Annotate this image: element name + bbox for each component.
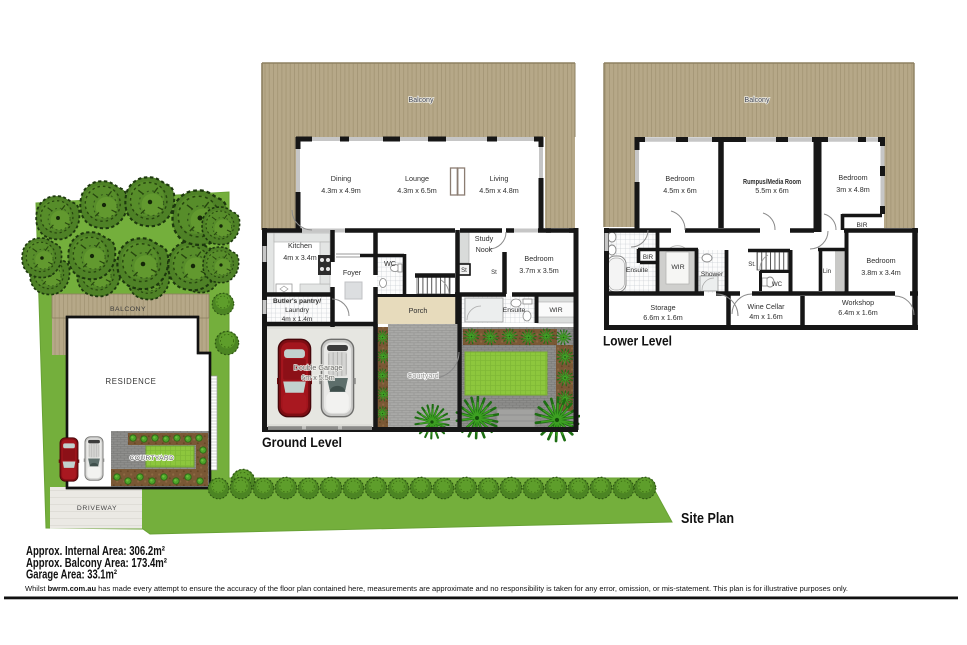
svg-text:Ensuite: Ensuite bbox=[626, 267, 648, 274]
svg-text:Bedroom: Bedroom bbox=[665, 174, 694, 183]
svg-text:Shower: Shower bbox=[701, 271, 724, 278]
svg-text:Lin: Lin bbox=[823, 268, 832, 275]
svg-text:Workshop: Workshop bbox=[842, 298, 874, 307]
svg-text:Butler's pantry/: Butler's pantry/ bbox=[273, 298, 321, 305]
svg-text:Lounge: Lounge bbox=[405, 174, 429, 183]
svg-text:DRIVEWAY: DRIVEWAY bbox=[77, 505, 117, 512]
svg-text:5.5m x 6m: 5.5m x 6m bbox=[755, 186, 789, 195]
svg-text:3m x 4.8m: 3m x 4.8m bbox=[836, 185, 870, 194]
svg-text:Living: Living bbox=[490, 174, 509, 183]
svg-text:6.4m x 1.6m: 6.4m x 1.6m bbox=[838, 308, 878, 317]
svg-text:Wine Cellar: Wine Cellar bbox=[747, 302, 785, 311]
svg-text:Double Garage: Double Garage bbox=[294, 363, 343, 372]
svg-text:3.8m x 3.4m: 3.8m x 3.4m bbox=[861, 268, 901, 277]
svg-text:Rumpus/Media Room: Rumpus/Media Room bbox=[743, 177, 801, 186]
svg-text:4.3m x 6.5m: 4.3m x 6.5m bbox=[397, 186, 437, 195]
svg-text:WIR: WIR bbox=[671, 264, 684, 271]
svg-text:Garage Area: 33.1m²: Garage Area: 33.1m² bbox=[26, 568, 117, 582]
svg-text:4.5m x 4.8m: 4.5m x 4.8m bbox=[479, 186, 519, 195]
svg-text:4.3m x 4.9m: 4.3m x 4.9m bbox=[321, 186, 361, 195]
svg-text:Ensuite: Ensuite bbox=[503, 307, 526, 314]
svg-text:BIR: BIR bbox=[857, 222, 868, 229]
svg-text:Foyer: Foyer bbox=[343, 268, 362, 277]
svg-text:Bedroom: Bedroom bbox=[838, 173, 867, 182]
svg-text:Kitchen: Kitchen bbox=[288, 241, 312, 250]
svg-text:Balcony: Balcony bbox=[745, 97, 770, 104]
svg-text:Whilst bwrm.com.au has made ev: Whilst bwrm.com.au has made every attemp… bbox=[25, 584, 848, 593]
svg-text:Porch: Porch bbox=[409, 306, 428, 315]
svg-text:Dining: Dining bbox=[331, 174, 351, 183]
svg-text:St.: St. bbox=[748, 261, 756, 268]
svg-text:Nook: Nook bbox=[476, 245, 493, 254]
svg-text:BIR: BIR bbox=[643, 254, 654, 261]
svg-text:St: St bbox=[491, 270, 497, 276]
svg-text:WIR: WIR bbox=[549, 307, 562, 314]
svg-text:COURTYARD: COURTYARD bbox=[130, 455, 174, 462]
svg-text:6m x 5.5m: 6m x 5.5m bbox=[301, 373, 335, 382]
svg-text:Courtyard: Courtyard bbox=[407, 371, 439, 380]
svg-text:WC: WC bbox=[772, 281, 783, 288]
svg-text:Site Plan: Site Plan bbox=[681, 511, 734, 527]
svg-text:BALCONY: BALCONY bbox=[110, 306, 146, 313]
svg-text:St: St bbox=[461, 268, 467, 274]
svg-text:Study: Study bbox=[475, 234, 494, 243]
svg-text:Bedroom: Bedroom bbox=[524, 254, 553, 263]
svg-text:Storage: Storage bbox=[650, 303, 675, 312]
svg-text:3.7m x 3.5m: 3.7m x 3.5m bbox=[519, 266, 559, 275]
svg-text:Bedroom: Bedroom bbox=[866, 256, 895, 265]
svg-text:4m x 1.6m: 4m x 1.6m bbox=[749, 312, 783, 321]
svg-text:RESIDENCE: RESIDENCE bbox=[106, 377, 157, 386]
svg-text:Balcony: Balcony bbox=[409, 97, 434, 104]
svg-text:WC: WC bbox=[384, 259, 396, 268]
svg-text:Ground Level: Ground Level bbox=[262, 434, 342, 450]
svg-text:4m x 1.4m: 4m x 1.4m bbox=[282, 316, 313, 323]
svg-text:4m x 3.4m: 4m x 3.4m bbox=[283, 253, 317, 262]
svg-text:Laundry: Laundry bbox=[285, 307, 310, 314]
svg-text:4.5m x 6m: 4.5m x 6m bbox=[663, 186, 697, 195]
svg-text:Lower Level: Lower Level bbox=[603, 333, 672, 349]
svg-text:6.6m x 1.6m: 6.6m x 1.6m bbox=[643, 313, 683, 322]
